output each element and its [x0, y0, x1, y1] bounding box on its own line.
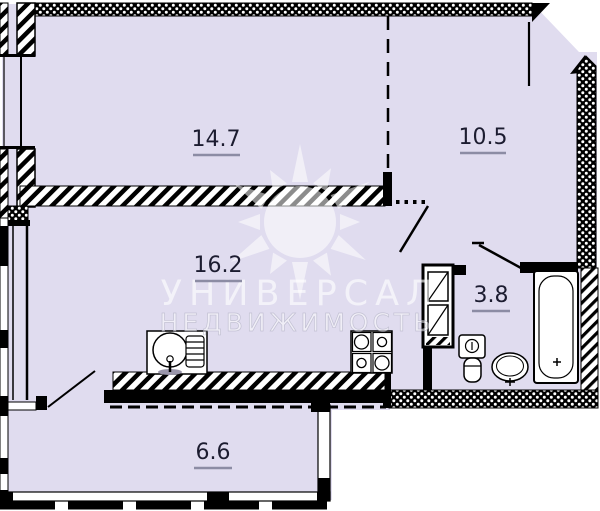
left-wall-outer-top	[0, 3, 8, 56]
sink-drainboard	[186, 336, 204, 367]
room-area-label-hall: 10.5	[459, 125, 508, 150]
balcony-bottom-band	[0, 492, 330, 501]
room-area-label-bedroom: 14.7	[192, 127, 241, 152]
toilet-bowl	[464, 358, 481, 382]
right-wall-lower	[581, 268, 598, 392]
balcony-band-tick	[317, 492, 330, 501]
window-sill-top	[0, 54, 35, 57]
door-jamb-hall	[383, 172, 392, 206]
sun-core	[264, 186, 336, 258]
basin-outer	[492, 353, 528, 381]
kitchen-sink	[147, 331, 207, 375]
left-wall-outer-mid	[0, 149, 8, 218]
kitchen-window-head	[8, 220, 30, 226]
room-area-label-bathroom: 3.8	[474, 283, 509, 308]
glazing-tick	[0, 458, 8, 474]
room-area-label-balcony: 6.6	[196, 440, 231, 465]
bathtub	[534, 271, 578, 383]
shaft-hatch-bottom	[426, 337, 450, 345]
balcony-band-tick	[0, 492, 13, 501]
right-wall-upper	[577, 56, 596, 268]
bathroom-west-wall	[423, 347, 432, 390]
tub-outer	[534, 271, 578, 383]
balcony-door-jamb	[36, 396, 47, 410]
glazing-tick	[0, 330, 8, 348]
floor-plan: УНИВЕРСАЛ НЕДВИЖИМОСТЬ 14.7 10.5 16.2 3.…	[0, 0, 600, 511]
room-area-label-kitchen-living: 16.2	[194, 253, 243, 278]
watermark-line2: НЕДВИЖИМОСТЬ	[160, 308, 435, 337]
left-wall-corner-block	[8, 206, 28, 222]
bottom-wall	[389, 390, 598, 408]
kitchen-window-sill	[8, 402, 36, 410]
left-wall-pier-top	[17, 3, 35, 56]
glazing-tick	[0, 226, 8, 266]
stove	[351, 331, 392, 373]
balcony-band-tick	[207, 492, 229, 501]
wall-kitchen-balcony-black	[104, 390, 390, 403]
glazing-tick	[0, 396, 8, 416]
shaft-wall-stub	[453, 265, 466, 275]
balcony-right-cap	[311, 403, 330, 412]
top-wall	[28, 3, 532, 16]
